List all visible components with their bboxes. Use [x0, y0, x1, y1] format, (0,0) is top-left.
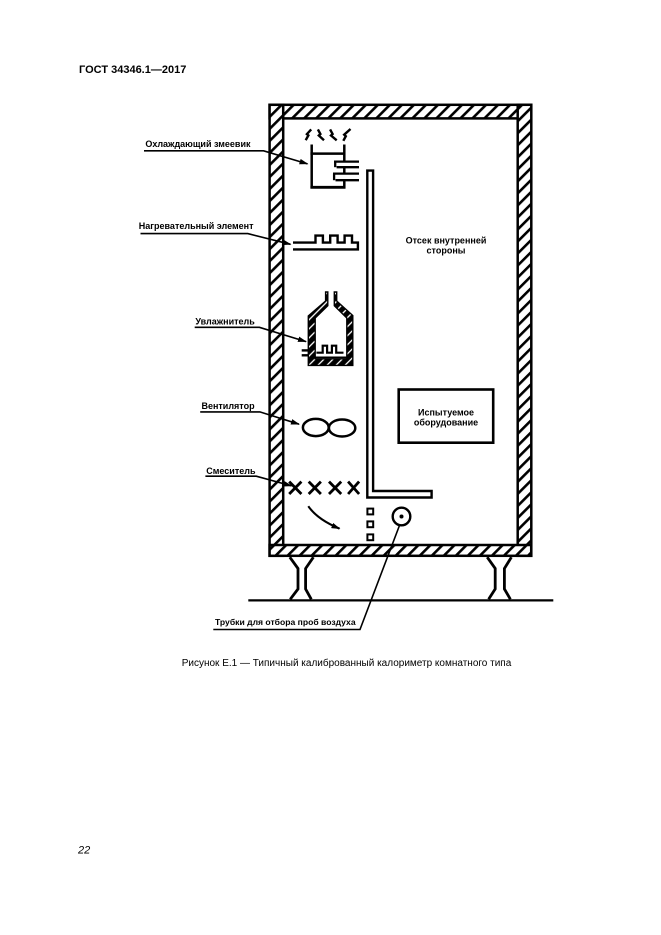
svg-text:Смеситель: Смеситель — [206, 466, 256, 476]
svg-text:Отсек внутренней: Отсек внутренней — [406, 235, 487, 245]
svg-text:ГОСТ 34346.1—2017: ГОСТ 34346.1—2017 — [79, 64, 186, 76]
svg-text:Трубки для отбора проб воздуха: Трубки для отбора проб воздуха — [215, 617, 356, 627]
svg-text:22: 22 — [77, 845, 90, 857]
svg-text:Нагревательный элемент: Нагревательный элемент — [139, 221, 254, 231]
svg-text:Увлажнитель: Увлажнитель — [195, 316, 255, 326]
svg-text:Рисунок Е.1 — Типичный калибро: Рисунок Е.1 — Типичный калиброванный кал… — [182, 657, 512, 669]
svg-text:стороны: стороны — [427, 246, 466, 256]
svg-text:Испытуемое: Испытуемое — [418, 407, 474, 417]
svg-text:оборудование: оборудование — [414, 418, 478, 428]
svg-text:Охлаждающий змеевик: Охлаждающий змеевик — [145, 139, 251, 149]
svg-text:Вентилятор: Вентилятор — [201, 401, 255, 411]
